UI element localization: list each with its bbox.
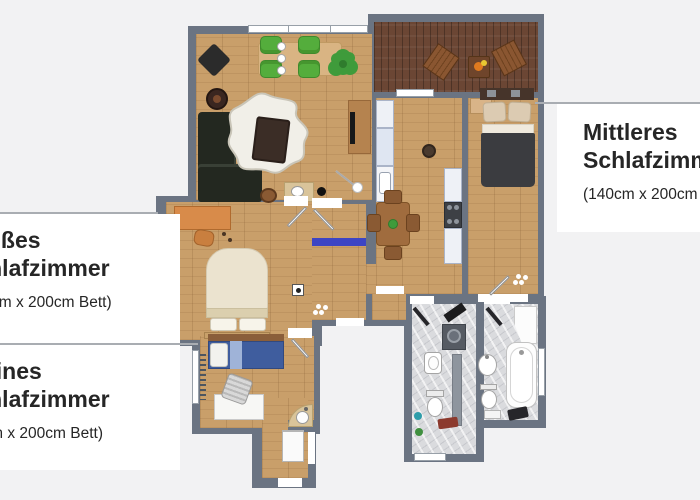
wc-hand-sink-basin (428, 356, 439, 370)
wc-window (414, 453, 446, 461)
wc-plant (415, 428, 423, 436)
middle-bed-pillow-right (507, 101, 531, 122)
small-bed-blanket-stripe (230, 341, 242, 369)
bathtub-basin (510, 347, 533, 403)
bathtub-tap (519, 350, 524, 355)
wc-toilet-tank (426, 390, 444, 397)
wc-door-opening (410, 296, 434, 304)
callout-small-bedroom-line1: Kleines (0, 358, 42, 384)
corner-sink-tap (304, 407, 308, 411)
side-table-center (213, 95, 221, 103)
plate-3 (277, 66, 286, 75)
large-bedroom-desk-chair (193, 228, 215, 247)
balcony-flower-yellow (481, 60, 487, 66)
kitchen-counter-2 (444, 228, 462, 264)
living-room-window-frame2 (330, 25, 331, 33)
floor-lamp-shade (352, 182, 363, 193)
middle-bed-pillow-left (482, 101, 506, 122)
bathroom-toilet-bowl (481, 390, 497, 409)
callout-large-bedroom-line2: Schlafzimmer (0, 255, 110, 281)
middle-bed-headboard-item-1 (487, 90, 496, 97)
living-room-window (248, 25, 368, 33)
corridor-floor (372, 294, 406, 320)
small-bed-headboard (208, 334, 284, 341)
stove-burner-3 (447, 219, 452, 224)
leader-line-large-bedroom (0, 212, 158, 214)
living-room-window-frame (288, 25, 289, 33)
kitchen-stool (422, 144, 436, 158)
leader-line-middle-bedroom (535, 102, 700, 104)
paw-print-bedroom (516, 274, 521, 279)
dining-chair-north (384, 190, 402, 204)
wooden-stool (260, 188, 277, 203)
callout-large-bedroom: Großes Schlafzimmer (160cm x 200cm Bett) (0, 214, 180, 343)
green-chair-4 (298, 60, 320, 78)
middle-bed-headboard-item-2 (511, 90, 520, 97)
washing-machine-door (447, 329, 461, 343)
living-plant-center (339, 60, 347, 68)
small-bedroom-radiator (200, 354, 206, 400)
middle-bed-duvet (481, 133, 535, 187)
desk-item-1 (222, 232, 226, 236)
callout-middle-bedroom-line2: Schlafzimmer (583, 147, 700, 173)
bathroom-door-opening (484, 296, 510, 304)
desk-item-2 (228, 238, 232, 242)
black-vase (317, 187, 326, 196)
leader-line-small-bedroom (0, 343, 198, 345)
small-bedroom-window (192, 350, 199, 404)
large-bed-foot-band (206, 308, 268, 318)
floor-plan-page: Mittleres Schlafzimmer (140cm x 200cm Be… (0, 0, 700, 500)
hallway-floor-2 (366, 264, 376, 294)
small-bedroom-door-opening (288, 328, 312, 338)
green-chair-2 (298, 36, 320, 54)
large-bedroom-desk (174, 206, 231, 230)
stove-burner-4 (454, 219, 459, 224)
callout-small-bedroom-line2: Schlafzimmer (0, 386, 110, 412)
bath-shelf (484, 410, 501, 419)
callout-middle-bedroom-size: (140cm x 200cm Bett) (583, 186, 700, 204)
large-bedroom-door-opening (284, 196, 308, 206)
plate-1 (277, 42, 286, 51)
wc-shelf-column (452, 354, 462, 426)
callout-small-bedroom: Kleines Schlafzimmer (90cm x 200cm Bett) (0, 345, 180, 470)
living-hallway-door-opening (312, 198, 342, 208)
kitchen-cabinet-1 (376, 100, 394, 128)
small-bed-pillow (210, 343, 228, 367)
kitchen-south-opening (376, 286, 404, 294)
dining-chair-east (406, 214, 420, 232)
entrance-side-door (308, 432, 315, 464)
large-bed-duvet (206, 248, 268, 310)
large-bed-pillow-2 (239, 318, 266, 331)
coffee-table (251, 116, 290, 164)
kitchen-counter-1 (444, 168, 462, 202)
stove-burner-1 (447, 205, 452, 210)
plate-2 (277, 54, 286, 63)
boiler-icon (296, 288, 301, 293)
hallway-south-opening (336, 318, 364, 326)
callout-small-bedroom-title: Kleines Schlafzimmer (0, 357, 180, 413)
paw-print-hall (316, 304, 321, 309)
tv (350, 112, 355, 144)
kitchen-window (396, 89, 434, 97)
dining-table-plant (388, 219, 398, 229)
wc-bin (414, 412, 422, 420)
hallway-floor (306, 204, 366, 320)
callout-middle-bedroom-title: Mittleres Schlafzimmer (583, 118, 700, 174)
callout-small-bedroom-size: (90cm x 200cm Bett) (0, 425, 180, 443)
dining-chair-west (367, 214, 381, 232)
entrance-wardrobe (282, 430, 304, 462)
callout-middle-bedroom-line1: Mittleres (583, 119, 678, 145)
kitchen-cabinet-2 (376, 128, 394, 166)
callout-large-bedroom-title: Großes Schlafzimmer (0, 226, 180, 282)
wc-toilet-bowl (427, 397, 443, 417)
bathroom-sink-tap (485, 355, 489, 359)
entrance-front-door (278, 478, 302, 487)
callout-large-bedroom-line1: Großes (0, 227, 41, 253)
bathroom-window (538, 348, 545, 396)
callout-large-bedroom-size: (160cm x 200cm Bett) (0, 294, 180, 312)
hall-runner-rug (312, 238, 366, 246)
callout-middle-bedroom: Mittleres Schlafzimmer (140cm x 200cm Be… (557, 104, 700, 232)
stove-burner-2 (454, 205, 459, 210)
large-bed-pillow-1 (210, 318, 237, 331)
dining-chair-south (384, 246, 402, 260)
corner-sink-basin (296, 411, 309, 424)
